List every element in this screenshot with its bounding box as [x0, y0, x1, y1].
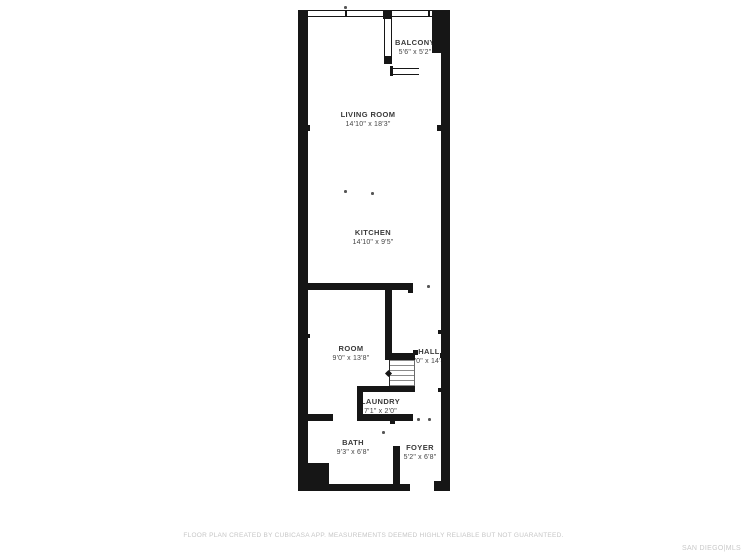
window-top: [306, 10, 433, 17]
fixture-dot: [427, 285, 430, 288]
wall-end-tick: [408, 288, 413, 293]
wall-right-foot: [434, 481, 450, 491]
wall-laundry-top: [357, 386, 415, 392]
window-mullion: [345, 10, 347, 17]
balcony-window-left: [384, 17, 392, 60]
bath-solid-block: [298, 463, 329, 485]
wall-tick: [413, 350, 418, 355]
wall-stairs-bottom: [385, 353, 415, 360]
wall-kitchen-bottom: [298, 283, 392, 290]
room-dims: 14'10" x 18'3": [308, 121, 428, 128]
wall-right: [441, 10, 450, 491]
door-jamb-tick: [390, 419, 395, 424]
room-name: LAUNDRY: [343, 397, 418, 406]
wall-tick: [438, 330, 442, 334]
room-dims: 14'10" x 9'5": [313, 239, 433, 246]
wall-room-bath-b: [357, 414, 413, 421]
room-name: LIVING ROOM: [308, 110, 428, 119]
balcony-window-cap: [384, 56, 392, 64]
wall-tick: [306, 334, 310, 338]
window-junction-tick: [383, 10, 392, 19]
window-mark-dot: [344, 6, 347, 9]
balcony-railing-end: [390, 66, 393, 76]
wall-tick: [437, 125, 442, 131]
wall-room-bath-a: [298, 414, 333, 421]
balcony-railing-bottom: [392, 68, 419, 75]
staircase: [389, 360, 415, 389]
mls-logo: SAN DIEGO|MLS: [682, 545, 741, 552]
floor-plan: BALCONY 5'6" x 5'2" LIVING ROOM 14'10" x…: [0, 0, 747, 560]
wall-bath-foyer: [393, 450, 400, 486]
wall-right-top-block: [432, 10, 450, 53]
fixture-dot: [382, 431, 385, 434]
room-label-living-room: LIVING ROOM 14'10" x 18'3": [308, 110, 428, 128]
room-label-kitchen: KITCHEN 14'10" x 9'5": [313, 228, 433, 246]
fixture-dot: [344, 190, 347, 193]
fixture-dot: [371, 192, 374, 195]
fixture-dot: [417, 418, 420, 421]
wall-room-right: [385, 283, 392, 360]
room-name: KITCHEN: [313, 228, 433, 237]
wall-cap-tick: [393, 446, 400, 450]
window-mullion: [428, 10, 430, 17]
wall-tick: [305, 125, 310, 131]
fixture-dot: [428, 418, 431, 421]
wall-tick: [438, 388, 442, 392]
floor-plan-disclaimer: FLOOR PLAN CREATED BY CUBICASA APP. MEAS…: [0, 532, 747, 539]
room-label-laundry: LAUNDRY 7'1" x 2'0": [343, 397, 418, 415]
hall-opening-tick: [440, 353, 444, 358]
